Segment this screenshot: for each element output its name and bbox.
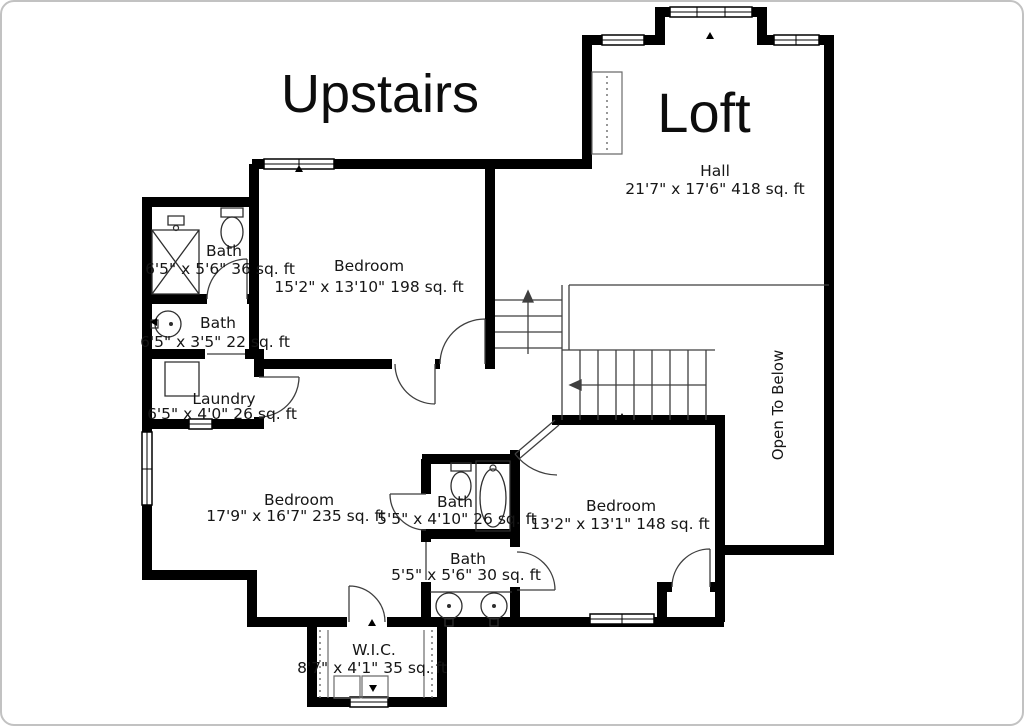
shower-stall xyxy=(152,216,199,294)
toilet-tank-upper-bath xyxy=(221,208,243,217)
room-dims-bath-lower: 5'5" x 5'6" 30 sq. ft xyxy=(391,566,541,584)
room-dims-bedroom-upper: 15'2" x 13'10" 198 sq. ft xyxy=(274,278,463,296)
room-label-bath-center: Bath xyxy=(437,493,473,511)
room-label-bedroom-right: Bedroom xyxy=(586,497,656,515)
toilet-tank-center-bath xyxy=(451,463,471,471)
room-dims-wic: 8'7" x 4'1" 35 sq. ft xyxy=(297,659,447,677)
room-dims-hall: 21'7" x 17'6" 418 sq. ft xyxy=(625,180,804,198)
room-label-bedroom-upper: Bedroom xyxy=(334,257,404,275)
room-label-bath-upper: Bath xyxy=(206,242,242,260)
marker-triangle-wic-window xyxy=(369,685,377,692)
room-dims-bath-upper: 6'5" x 5'6" 36 sq. ft xyxy=(145,260,295,278)
labels: Upstairs Loft Hall 21'7" x 17'6" 418 sq.… xyxy=(140,64,805,677)
marker-triangles xyxy=(150,32,714,692)
room-dims-bedroom-left: 17'9" x 16'7" 235 sq. ft xyxy=(206,507,385,525)
room-label-wic: W.I.C. xyxy=(352,641,396,659)
room-dims-laundry: 6'5" x 4'0" 26 sq. ft xyxy=(147,405,297,423)
room-dims-bedroom-right: 13'2" x 13'1" 148 sq. ft xyxy=(530,515,709,533)
stairs-up-arrow xyxy=(523,291,533,354)
sink-drain-mid-bath xyxy=(169,322,173,326)
open-to-below-label: Open To Below xyxy=(769,350,787,461)
room-dims-bath-mid: 6'5" x 3'5" 22 sq. ft xyxy=(140,333,290,351)
marker-triangle-loft-window xyxy=(706,32,714,39)
bathtub-faucet xyxy=(490,465,496,471)
room-dims-bath-center: 5'5" x 4'10" 26 sq. ft xyxy=(377,510,537,528)
stairs-direction-arrow xyxy=(570,380,706,390)
loft-title: Loft xyxy=(657,81,751,144)
room-label-hall: Hall xyxy=(700,162,730,180)
floorplan-svg: Upstairs Loft Hall 21'7" x 17'6" 418 sq.… xyxy=(2,2,1024,726)
vanity-sink-left-drain xyxy=(447,604,451,608)
floorplan-card: Upstairs Loft Hall 21'7" x 17'6" 418 sq.… xyxy=(0,0,1024,726)
room-label-bath-mid: Bath xyxy=(200,314,236,332)
upstairs-title: Upstairs xyxy=(281,64,479,124)
vanity-sink-right-drain xyxy=(492,604,496,608)
marker-triangle-wic-door xyxy=(368,619,376,626)
